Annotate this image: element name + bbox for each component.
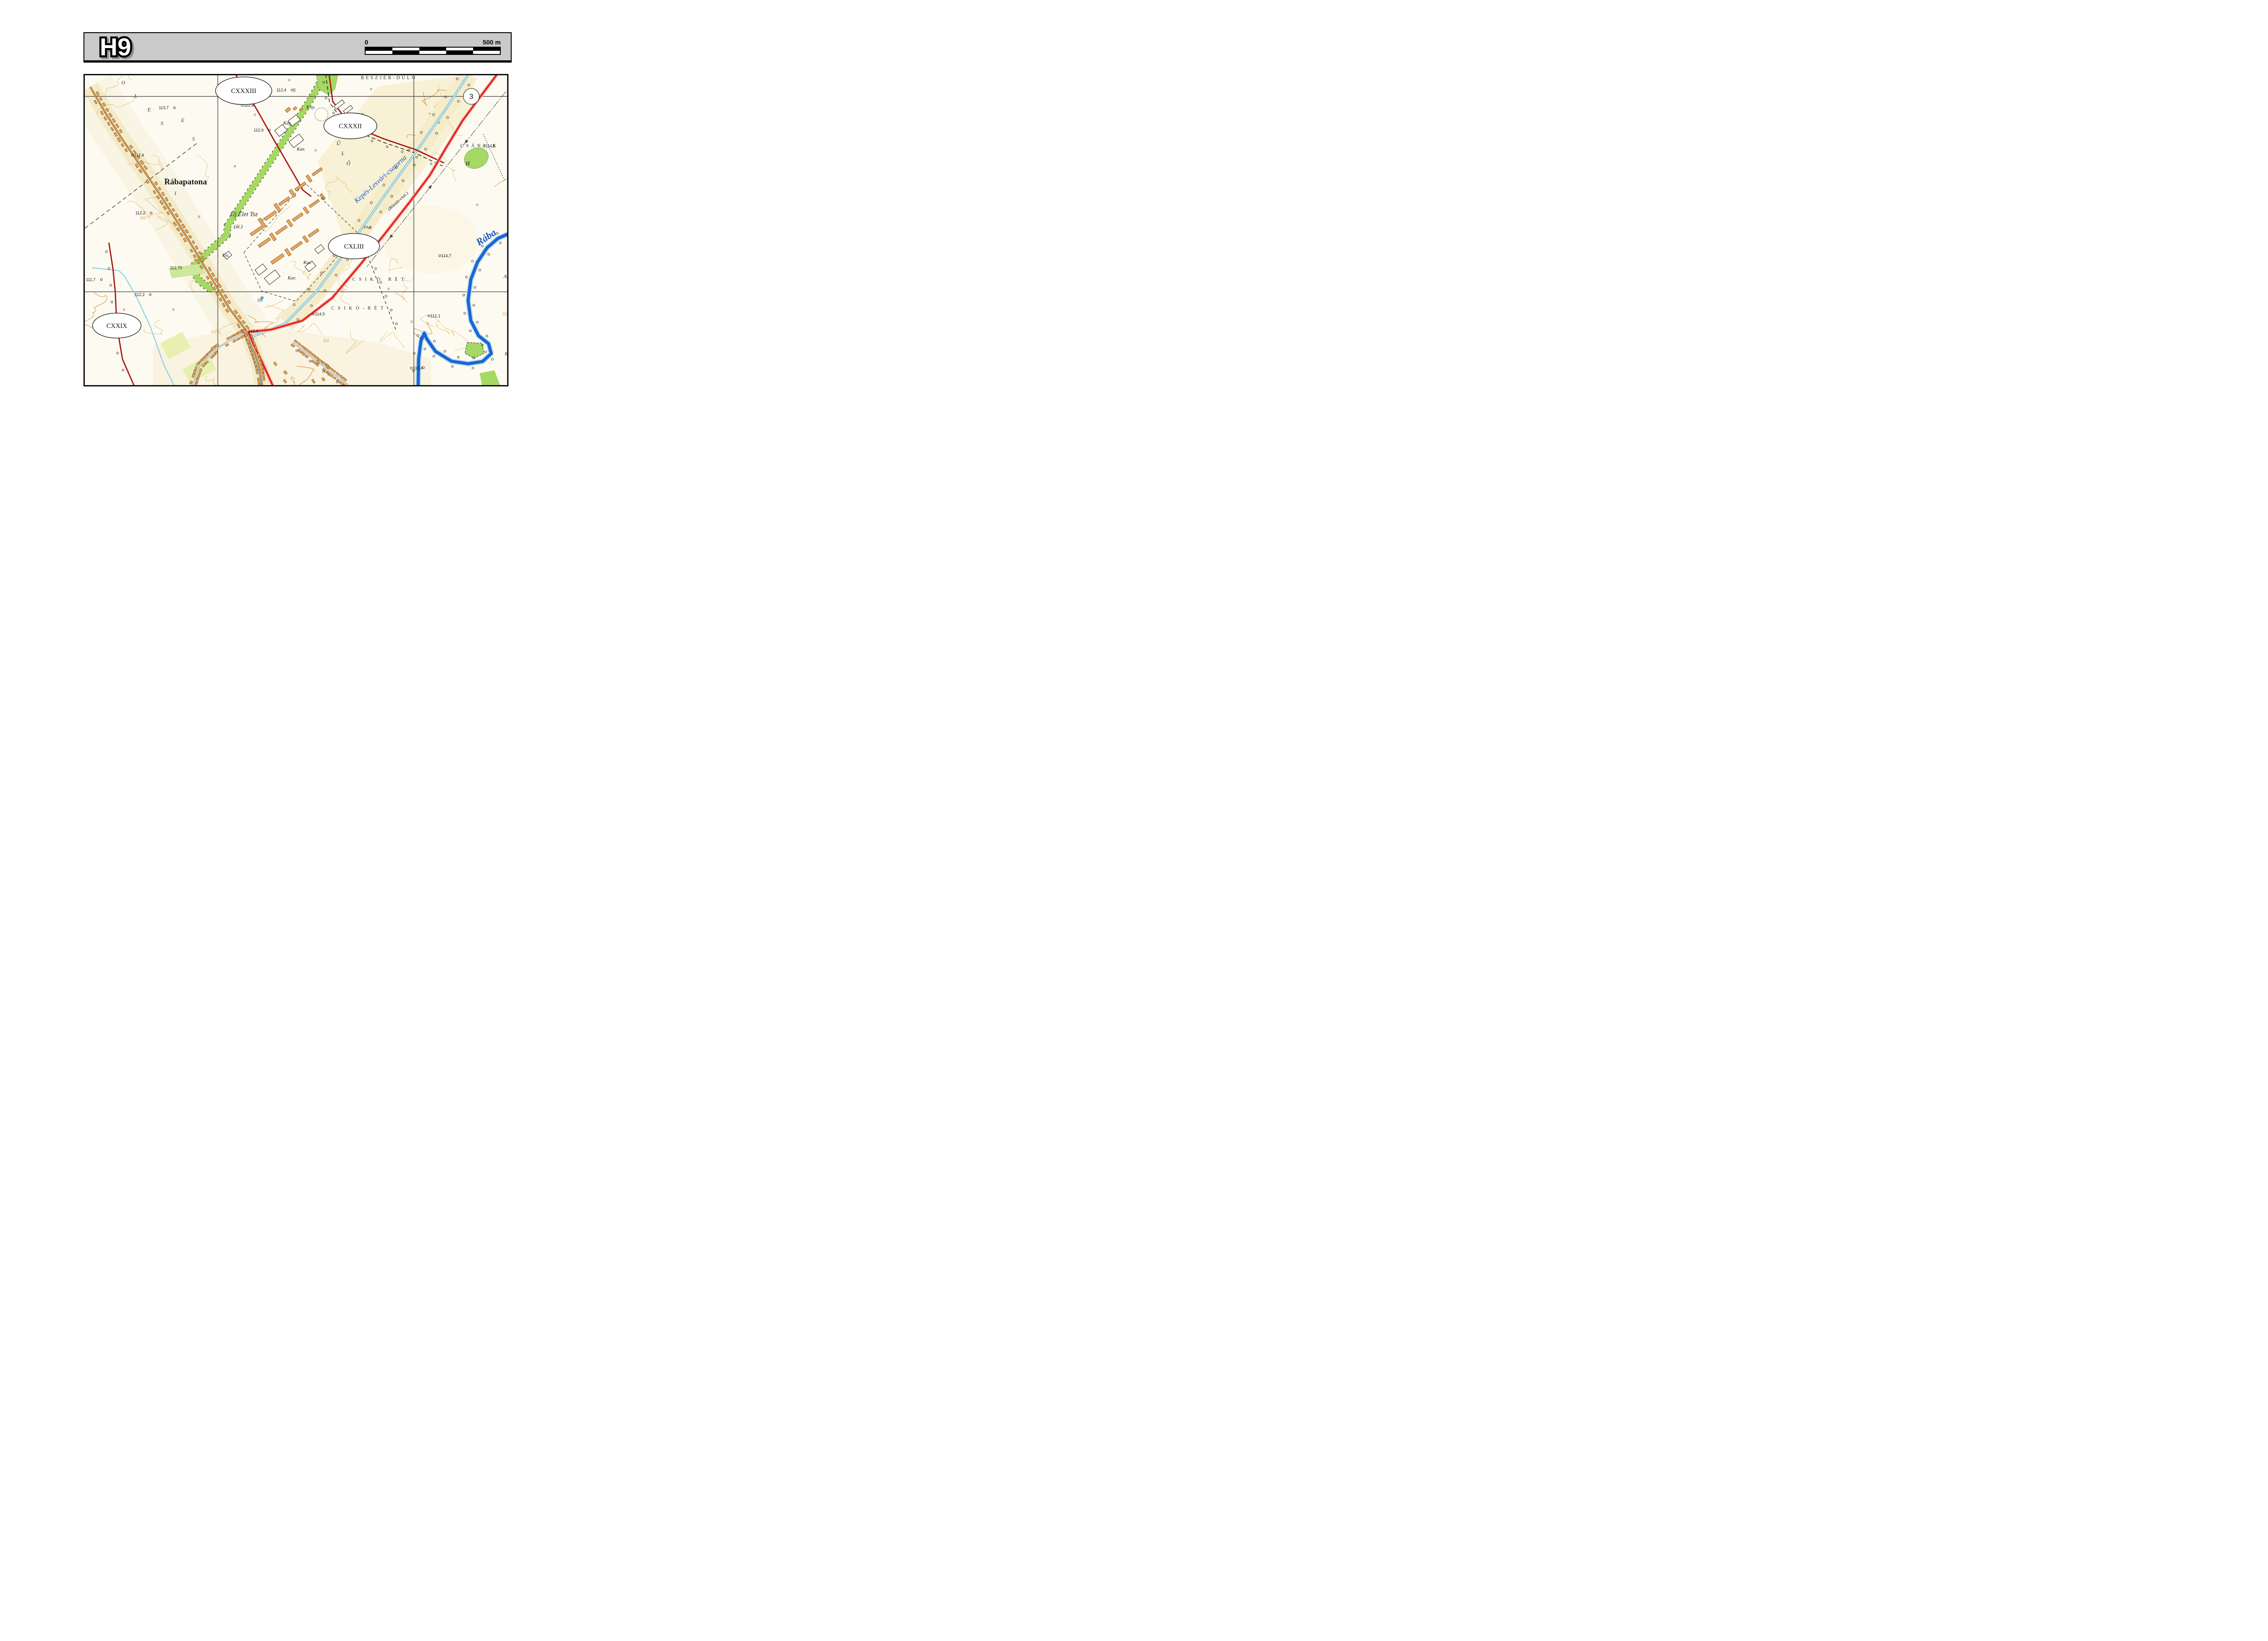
map-label: S — [192, 136, 195, 142]
scale-bar-row-top — [366, 48, 500, 51]
map-label: L — [134, 93, 137, 99]
sheet-code-art: H9 H9 — [98, 34, 166, 59]
sheet-code: H9 — [100, 34, 131, 59]
map-label: 114,7 — [441, 254, 451, 258]
map-label: CSIKÓ-RÉT — [331, 305, 386, 311]
map-label: II — [369, 87, 372, 91]
scale-start-label: 0 — [365, 39, 368, 45]
map-label: 112,4 — [276, 88, 286, 93]
map-label: II — [410, 319, 413, 323]
map-label: Kar. — [296, 147, 305, 152]
map-label: II — [262, 218, 264, 222]
map-label: 19 — [257, 298, 262, 303]
map-label: 112,2 — [136, 211, 146, 215]
map-label: 114,5 — [315, 312, 325, 316]
map-label: II — [253, 112, 256, 117]
map-label: II — [172, 308, 175, 312]
map-label: CSIKÓ RÉT — [352, 277, 408, 282]
map-label: E — [147, 107, 151, 113]
map-label: 112,2 — [135, 292, 145, 297]
contour-elevation-label: 112 — [211, 329, 217, 333]
map-label: Rábapatona — [164, 177, 207, 186]
map-label: II — [233, 164, 236, 168]
map-label: 112,4 — [413, 366, 423, 370]
map-label: II — [437, 121, 440, 125]
map-label: II — [321, 196, 324, 200]
map-label: 111,5 — [363, 225, 371, 229]
map-label: Ű — [337, 140, 341, 147]
map-label: 113,7 — [159, 106, 169, 110]
map-label: O — [122, 79, 126, 86]
contour-elevation-label: 112 — [140, 216, 146, 220]
sheet-header: H9 H9 0 500 m — [83, 32, 512, 63]
map-label: II — [475, 203, 478, 207]
map-label: 112,4 — [134, 153, 144, 157]
map-label: II — [122, 308, 125, 312]
map-label: II — [288, 78, 290, 82]
map-label: Új Élet Tsz — [230, 210, 258, 218]
map-label: 114,5 — [485, 144, 495, 148]
map-label: L — [341, 150, 345, 156]
map-label: A — [503, 273, 507, 279]
map-label: 112,9 — [254, 128, 264, 132]
map-label: R — [504, 350, 507, 357]
map-label: Ő — [347, 160, 351, 166]
scale-end-label: 500 m — [483, 39, 501, 45]
contour-elevation-label: 113 — [323, 338, 329, 342]
map-frame: RábapatonaÚj Élet Tsz(át.)Kepés-Lesvári-… — [83, 74, 508, 386]
map-label: H — [465, 161, 470, 167]
map-label: E — [181, 117, 185, 123]
grid-section-label: CXXIX — [107, 322, 127, 330]
scale-bar-checker — [365, 47, 501, 55]
map-label: II — [387, 287, 390, 291]
map-label: (át.) — [234, 224, 243, 230]
map-label: Kny. — [306, 105, 315, 110]
map-label: 111,7 — [86, 277, 96, 282]
map-label: S — [293, 87, 296, 93]
map-label: Kar. — [287, 275, 296, 281]
scale-bar: 0 500 m — [365, 39, 501, 55]
map-label: S — [161, 120, 163, 127]
map-label: 112,4 — [248, 329, 258, 333]
map-label: Kar. — [283, 121, 292, 126]
scale-bar-row-bottom — [366, 51, 500, 54]
topographic-map: RábapatonaÚj Élet Tsz(át.)Kepés-Lesvári-… — [85, 75, 507, 385]
map-label: 112,70 — [170, 265, 182, 270]
road-number-badge: 3 — [469, 93, 474, 101]
map-label: Kar. — [303, 260, 312, 265]
map-label: 112,1 — [430, 313, 440, 318]
grid-section-label: CXXXII — [339, 123, 362, 130]
grid-section-label: CXLIII — [344, 243, 364, 250]
contour-elevation-label: 112 — [502, 312, 507, 316]
grid-section-label: CXXXIII — [231, 88, 256, 95]
map-sheet: H9 H9 0 500 m RábapatonaÚj Élet Tsz(át.)… — [0, 0, 581, 410]
map-label: II — [197, 215, 200, 219]
map-label: Úa. — [222, 253, 229, 258]
map-label: II — [314, 148, 317, 152]
map-label: BESZJER-DŰLŐ — [361, 75, 417, 81]
